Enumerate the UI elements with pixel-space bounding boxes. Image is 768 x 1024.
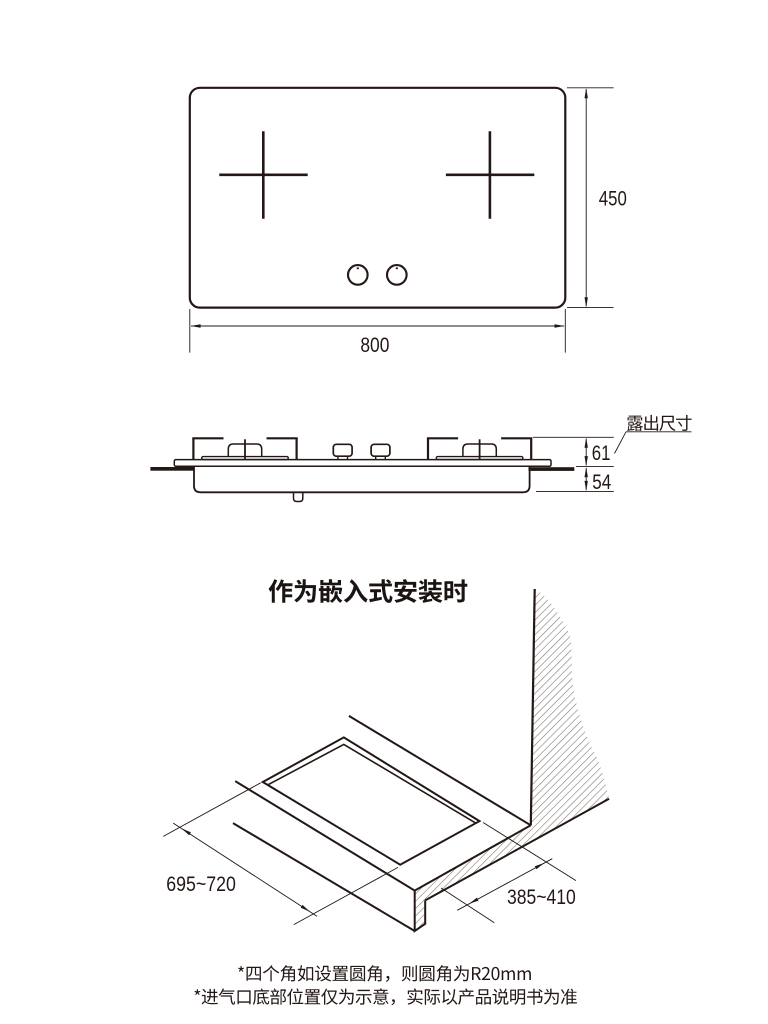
svg-text:450: 450 (599, 188, 627, 211)
svg-text:61: 61 (592, 442, 611, 465)
svg-text:54: 54 (592, 471, 611, 494)
svg-text:385~410: 385~410 (507, 886, 576, 909)
svg-text:695~720: 695~720 (166, 873, 236, 896)
svg-text:800: 800 (360, 334, 389, 357)
